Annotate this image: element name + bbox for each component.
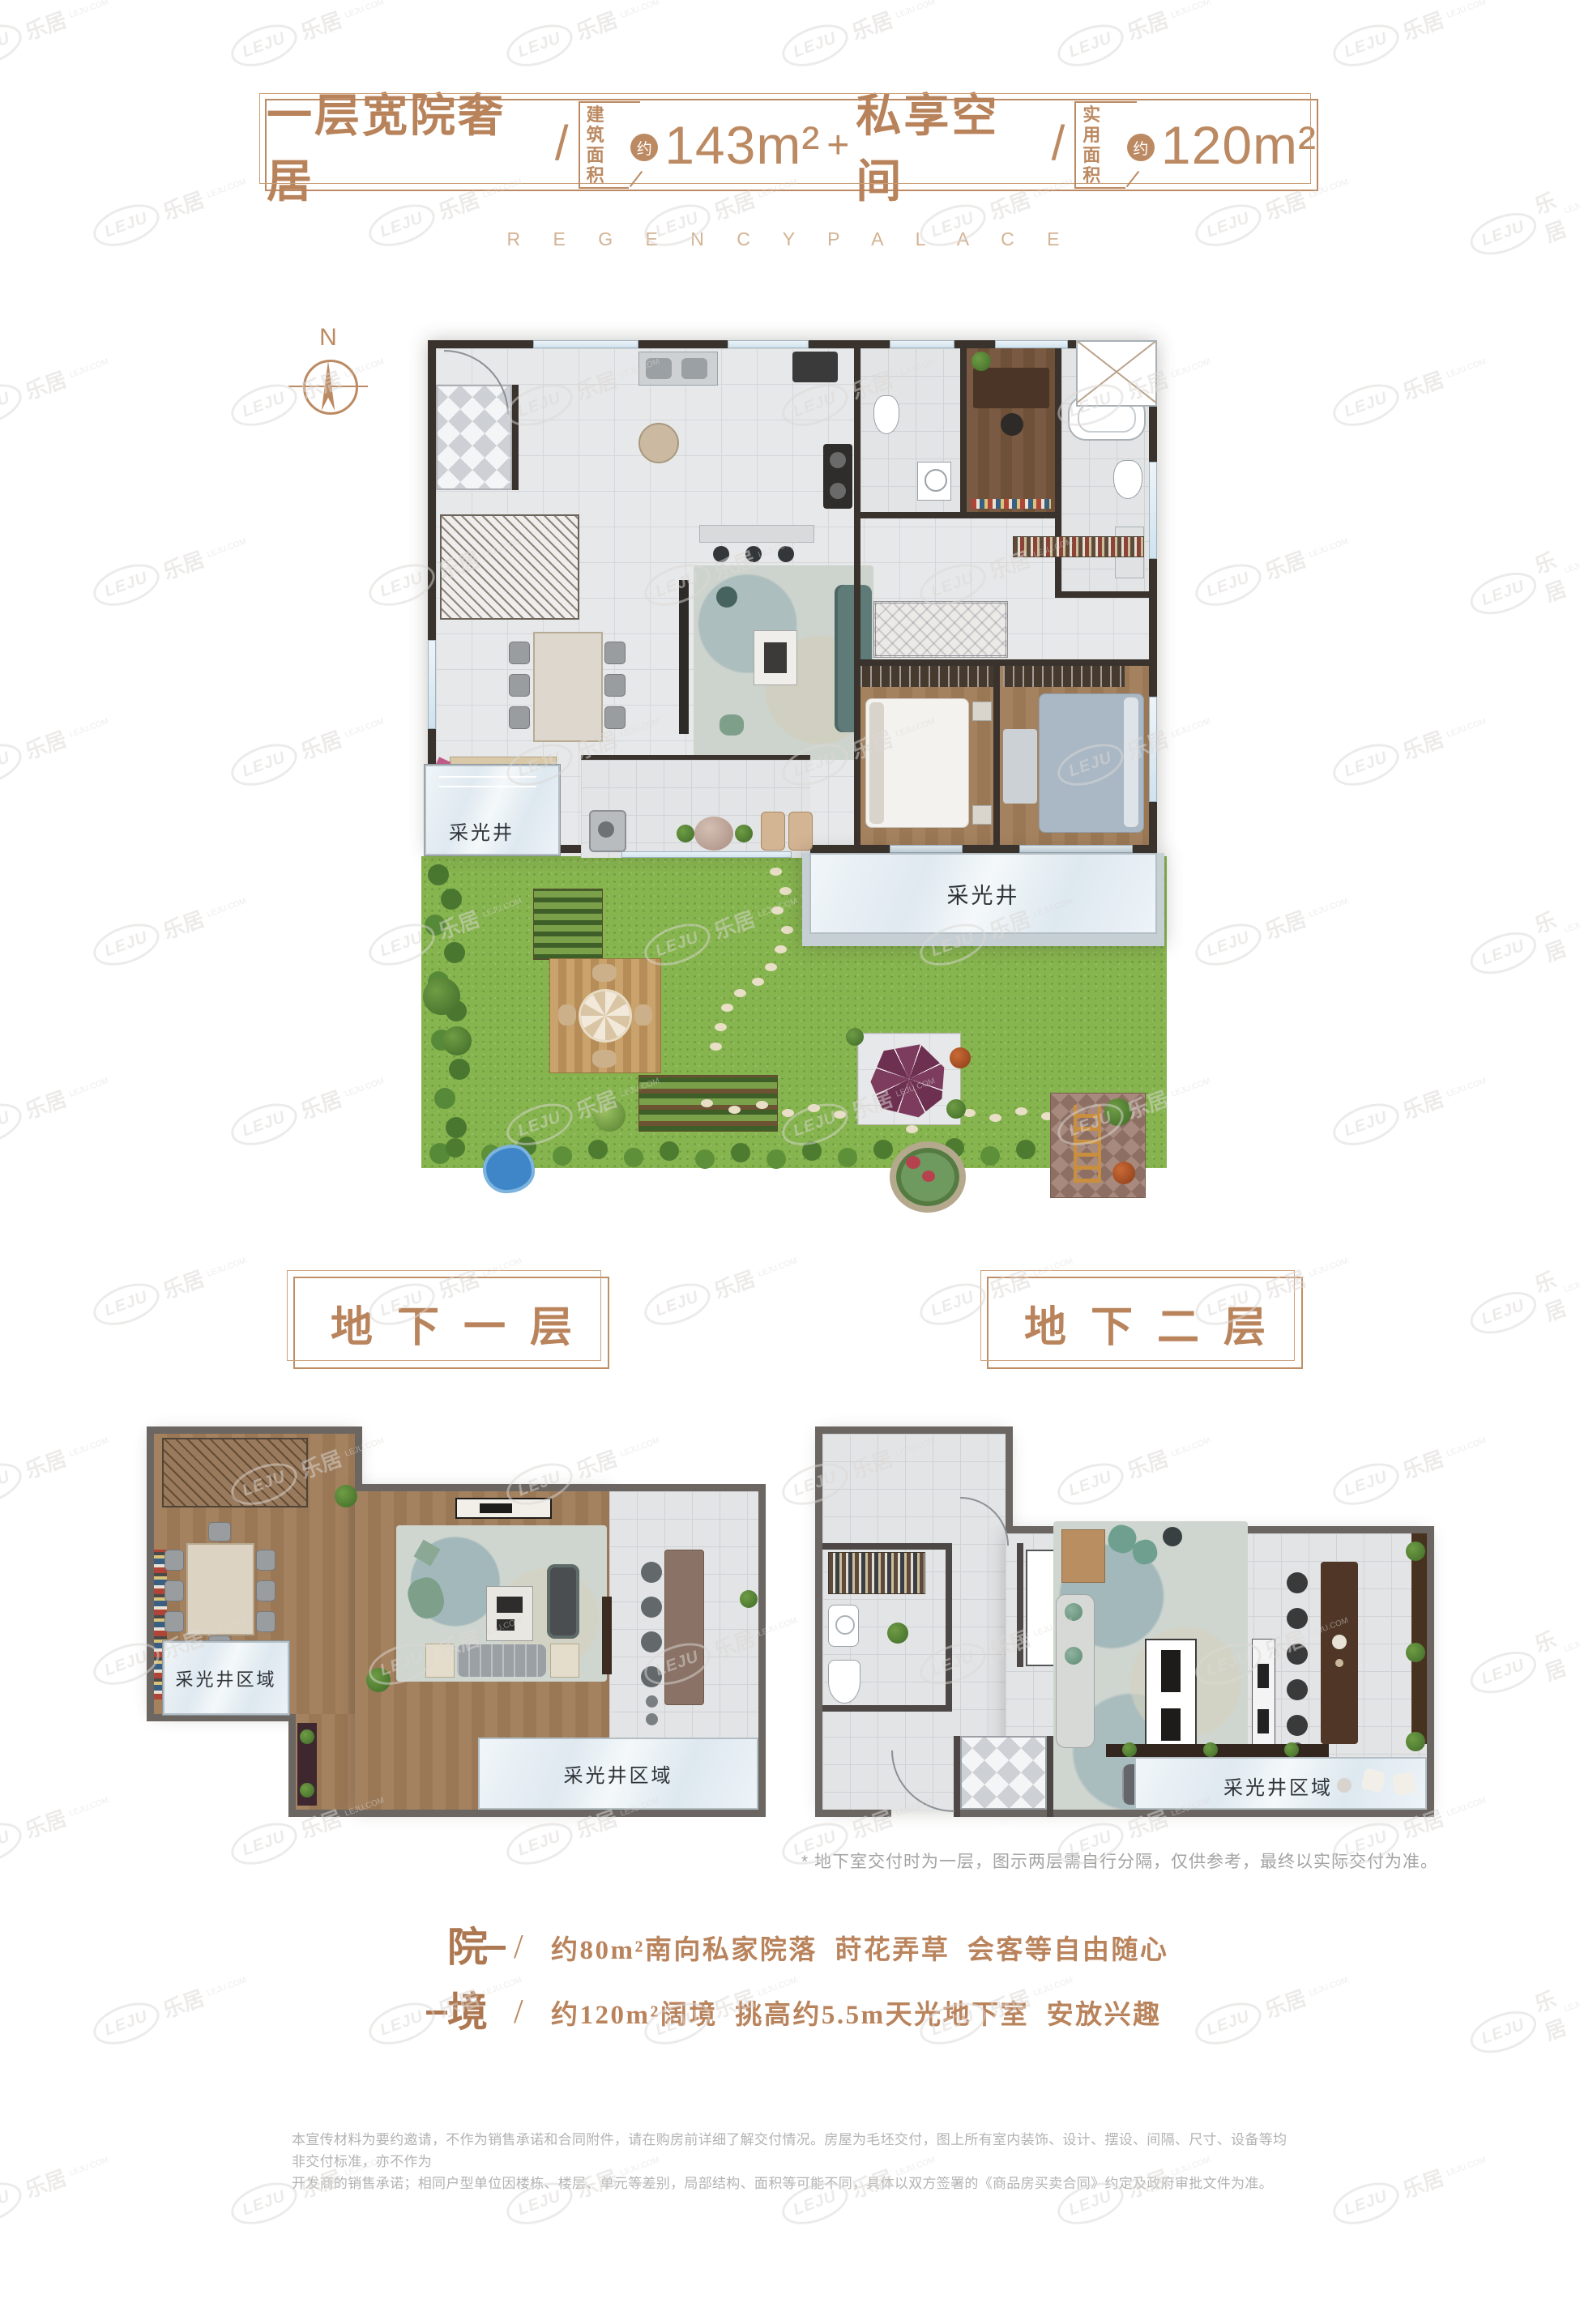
build-area-value: 143m² (664, 114, 820, 176)
yard-character: 院 (447, 1926, 488, 1968)
window (995, 340, 1068, 348)
toilet (1113, 460, 1142, 499)
leju-watermark-icon: LEJU乐居LEJU.COM (0, 0, 114, 75)
garden-deck (549, 958, 661, 1073)
chaise (547, 1564, 579, 1639)
wall (355, 1426, 362, 1491)
dining-chair (604, 642, 626, 664)
window (1149, 462, 1157, 559)
b2-lightwell-label: 采光井区域 (1223, 1772, 1333, 1800)
tub-inner (1078, 403, 1136, 433)
b1-island-counter (664, 1550, 704, 1705)
side-table (425, 1644, 455, 1678)
pillows (869, 702, 884, 824)
dining-chair (256, 1580, 275, 1601)
window (1149, 697, 1157, 802)
lightwell-left: 采光井 (424, 764, 561, 856)
nightstand (972, 805, 992, 825)
plant (1203, 1742, 1218, 1757)
compass: N (267, 324, 389, 446)
plant (1284, 1742, 1299, 1757)
b1-sofa (457, 1644, 546, 1677)
dining-chair (509, 706, 530, 729)
wall (355, 1484, 766, 1491)
leju-watermark-icon: LEJU乐居LEJU.COM (0, 344, 114, 434)
divider-slash: / (555, 115, 569, 171)
usable-area-label-1: 实用 (1083, 104, 1121, 145)
stool (641, 1597, 662, 1618)
b1-tv-console (455, 1498, 552, 1519)
shrub-row-left (428, 864, 449, 885)
sink-basin (681, 358, 707, 379)
bar-stool (713, 546, 729, 562)
leju-watermark-icon: LEJU乐居LEJU.COM (1461, 889, 1580, 993)
dining-chair (164, 1550, 184, 1571)
dining-table (533, 632, 603, 742)
entry-door-arc (444, 350, 509, 415)
tree (442, 1026, 472, 1055)
wall (946, 1543, 952, 1712)
tray (497, 1597, 523, 1613)
feature-row-yard: 院 / 约80m²南向私家院落 莳花弄草 会客等自由随心 (447, 1926, 1258, 1972)
disclaimer: 本宣传材料为要约邀请，不作为销售承诺和合同附件，请在购房前详细了解交付情况。房屋… (292, 2129, 1296, 2194)
washer-door (925, 469, 947, 492)
leju-watermark-icon: LEJU乐居LEJU.COM (501, 0, 665, 75)
kitchen-sink (638, 352, 718, 386)
wall (815, 1810, 891, 1817)
pouf (1163, 1527, 1182, 1546)
side-table (550, 1644, 579, 1678)
divider-slash: / (1052, 115, 1065, 171)
leju-watermark-icon: LEJU乐居LEJU.COM (1461, 169, 1580, 274)
wall (1055, 591, 1149, 598)
leju-watermark-icon: LEJU乐居LEJU.COM (0, 1064, 114, 1153)
leju-watermark-icon: LEJU乐居LEJU.COM (1461, 1248, 1580, 1353)
lightwell-frame (439, 776, 536, 787)
leju-watermark-icon: LEJU乐居LEJU.COM (88, 1243, 252, 1333)
dash-decoration (485, 1946, 506, 1950)
first-floor-plan: 采光井 采光井 (421, 340, 1167, 1168)
wall (147, 1426, 154, 1721)
wall (854, 348, 860, 845)
page-title: 一层宽院奢居 (267, 79, 545, 211)
ac-platform (1076, 340, 1157, 407)
tree (423, 978, 460, 1015)
usable-area-value: 120m² (1161, 114, 1317, 176)
wall (1055, 348, 1061, 598)
b2-entry-checker (960, 1736, 1047, 1810)
round-pond (890, 1141, 966, 1213)
yard-description: 约80m²南向私家院落 莳花弄草 会客等自由随心 (551, 1930, 1168, 1972)
kitchen-island (699, 525, 814, 543)
dining-chair (509, 642, 530, 664)
lightwell-right-label: 采光井 (947, 878, 1020, 910)
leju-watermark-icon: LEJU乐居LEJU.COM (1461, 529, 1580, 633)
leju-watermark-icon: LEJU乐居LEJU.COM (1327, 0, 1492, 75)
planter-strip (297, 1723, 317, 1806)
approx-badge: 约 (1127, 134, 1155, 161)
floorplan-poster: 一层宽院奢居 / 建筑 面积 约 143m² + 私享空间 / 实用 面积 约 … (0, 0, 1580, 2324)
plant (735, 825, 753, 842)
wall (512, 385, 519, 490)
play-area (1050, 1093, 1146, 1198)
sink-basin (646, 358, 672, 379)
approx-badge: 约 (630, 134, 658, 161)
shrub-row-bottom (446, 1138, 465, 1158)
b2-cabinet (1411, 1533, 1427, 1744)
leju-watermark-icon: LEJU乐居LEJU.COM (1461, 1608, 1580, 1712)
stool-small (646, 1713, 658, 1725)
realm-description: 约120m²阔境 挑高约5.5m天光地下室 安放兴趣 (551, 1994, 1162, 2036)
cushion (1392, 1772, 1416, 1795)
speaker-cone (598, 821, 614, 838)
pouf (716, 586, 737, 608)
chip-diagonal (1126, 171, 1139, 187)
shrub (1104, 1098, 1132, 1126)
burner (830, 483, 846, 499)
disclaimer-line-2: 开发商的销售承诺；相同户型单位因楼栋、楼层、单元等差别，局部结构、面积等可能不同… (292, 2173, 1296, 2194)
leju-watermark-icon: LEJU乐居LEJU.COM (1327, 704, 1492, 794)
feature-slash: / (514, 1926, 523, 1968)
basement1-title: 地下一层 (306, 1293, 596, 1354)
dining-chair (164, 1580, 184, 1601)
tv (480, 1503, 512, 1513)
build-area-chip: 建筑 面积 (579, 101, 630, 189)
shrub (1112, 1162, 1135, 1184)
wall (1017, 1543, 1023, 1667)
bedroom-2 (1000, 666, 1149, 845)
dining-chair (208, 1522, 231, 1542)
leju-watermark-icon: LEJU乐居LEJU.COM (0, 2143, 114, 2232)
header-box: 一层宽院奢居 / 建筑 面积 约 143m² + 私享空间 / 实用 面积 约 … (265, 99, 1318, 191)
garden-trellis (533, 889, 603, 960)
basement2-plan: 采光井区域 (810, 1388, 1450, 1829)
basement2-title: 地下二层 (1000, 1293, 1290, 1354)
dining-chair (604, 674, 626, 697)
b1-lightwell-bottom-label: 采光井区域 (564, 1759, 673, 1788)
terrace-window (621, 851, 792, 858)
plant (1122, 1742, 1137, 1757)
realm-character: 境 (447, 1991, 488, 2033)
cushion (1065, 1603, 1083, 1621)
void-hatch-area (440, 514, 579, 620)
stool (641, 1631, 662, 1652)
english-subtitle: R E G E N C Y P A L A C E (0, 228, 1580, 250)
stool (1287, 1679, 1308, 1700)
basement1-plan: 采光井区域 采光井区域 (142, 1388, 782, 1829)
leju-watermark-icon: LEJU乐居LEJU.COM (225, 0, 390, 75)
leju-watermark-icon: LEJU乐居LEJU.COM (776, 0, 941, 75)
leju-watermark-icon: LEJU乐居LEJU.COM (1327, 2143, 1492, 2232)
dining-chair (509, 674, 530, 697)
leju-watermark-icon: LEJU乐居LEJU.COM (1461, 1968, 1580, 2072)
study (967, 348, 1055, 512)
wall (1427, 1526, 1434, 1817)
leju-watermark-icon: LEJU乐居LEJU.COM (225, 1064, 390, 1153)
build-area-label-1: 建筑 (587, 104, 625, 145)
wall (147, 1426, 362, 1434)
dining-chair (256, 1550, 275, 1571)
b1-coffee-table (486, 1586, 533, 1641)
burner (830, 452, 846, 468)
plant (887, 1623, 908, 1644)
leju-watermark-icon: LEJU乐居LEJU.COM (1189, 524, 1354, 614)
compass-north-label: N (267, 324, 389, 352)
window (533, 340, 638, 348)
lounge-chair (761, 812, 785, 851)
wall (288, 1714, 296, 1817)
table-tray (764, 642, 787, 673)
leju-watermark-icon: LEJU乐居LEJU.COM (225, 704, 390, 794)
cup (1335, 1659, 1343, 1667)
bookshelf (971, 499, 1051, 509)
hallway-shelf (1013, 536, 1144, 557)
b2-lightwell: 采光井区域 (1134, 1757, 1427, 1810)
wall (822, 1705, 952, 1712)
bar-stool (778, 546, 794, 562)
wall (960, 348, 967, 512)
window (890, 845, 963, 853)
plus-sign: + (826, 123, 849, 168)
bathroom-1 (860, 348, 960, 512)
wall (954, 1736, 960, 1817)
plant (1406, 1732, 1425, 1751)
b1-hatch-area (162, 1438, 308, 1507)
flower-cluster (846, 1028, 864, 1046)
toilet (873, 395, 899, 434)
lightwell-right-glass: 采光井 (809, 853, 1157, 934)
tv-media-wall (679, 580, 689, 734)
deck-seat (634, 1004, 652, 1026)
leju-watermark-icon: LEJU乐居LEJU.COM (1189, 884, 1354, 974)
wall (960, 1810, 1434, 1817)
speaker (589, 810, 626, 852)
window (428, 640, 436, 729)
bar-stool (745, 546, 762, 562)
leju-watermark-icon: LEJU乐居LEJU.COM (0, 1423, 114, 1513)
tea-set (1332, 1635, 1347, 1649)
kitchen-table (638, 423, 679, 463)
terrace (581, 755, 810, 858)
b2-console (1252, 1639, 1275, 1758)
desk-chair (1001, 413, 1023, 436)
wall (815, 1426, 822, 1817)
plant (971, 352, 991, 371)
private-space-label: 私享空间 (856, 79, 1041, 211)
dining-chair (256, 1611, 275, 1632)
deck-seat (558, 1004, 576, 1026)
washer (917, 462, 951, 501)
leju-watermark-icon: LEJU乐居LEJU.COM (1052, 0, 1216, 75)
plant (366, 1668, 391, 1692)
stone-path (770, 868, 782, 876)
leju-watermark-icon: LEJU乐居LEJU.COM (88, 524, 252, 614)
stool-small (646, 1695, 658, 1708)
window (890, 340, 954, 348)
deck-table (581, 991, 630, 1040)
stool (641, 1666, 662, 1687)
plant (1406, 1542, 1425, 1561)
b2-bar-counter (1321, 1562, 1358, 1744)
leju-watermark-icon: LEJU乐居LEJU.COM (88, 884, 252, 974)
bed (865, 698, 969, 828)
stool (641, 1562, 662, 1583)
wall (993, 666, 1000, 845)
stool (1287, 1572, 1308, 1593)
window (728, 340, 809, 348)
wall (822, 1543, 952, 1550)
leju-watermark-icon: LEJU乐居LEJU.COM (638, 1243, 803, 1333)
flower-cluster (950, 1047, 971, 1068)
leju-watermark-icon: LEJU乐居LEJU.COM (88, 1963, 252, 2053)
stool (1287, 1644, 1308, 1665)
basement1-title-box: 地下一层 (293, 1277, 609, 1369)
nightstand (972, 701, 992, 721)
stone (1337, 1778, 1352, 1793)
disclaimer-line-1: 本宣传材料为要约邀请，不作为销售承诺和合同附件，请在购房前详细了解交付情况。房屋… (292, 2129, 1296, 2173)
dining-chair (164, 1611, 184, 1632)
leju-watermark-icon: LEJU乐居LEJU.COM (1327, 344, 1492, 434)
stone-path (906, 1125, 918, 1133)
toilet (828, 1660, 860, 1704)
washbasin (828, 1605, 859, 1647)
leju-watermark-icon: LEJU乐居LEJU.COM (0, 704, 114, 794)
stone-path (701, 1099, 713, 1107)
wall (815, 1426, 1013, 1434)
feature-row-realm: 境 / 约120m²阔境 挑高约5.5m天光地下室 安放兴趣 (447, 1991, 1258, 2036)
mirror-panel (1026, 1550, 1057, 1666)
plant (677, 825, 694, 842)
window (1019, 845, 1133, 853)
daybed (1056, 1594, 1095, 1748)
play-ladder (1074, 1105, 1101, 1183)
stool (1287, 1715, 1308, 1736)
wall (288, 1810, 766, 1817)
b2-wardrobe (828, 1552, 925, 1594)
usable-area-chip: 实用 面积 (1074, 101, 1125, 189)
b1-dining-table (186, 1543, 254, 1635)
planter-strip (1106, 1744, 1329, 1757)
small-pond (483, 1145, 535, 1193)
console-item (1258, 1664, 1269, 1688)
plant (740, 1590, 758, 1608)
flower-cluster (946, 1099, 966, 1119)
usable-area-label-2: 面积 (1083, 145, 1121, 185)
lily (922, 1171, 935, 1182)
basement2-title-box: 地下二层 (987, 1277, 1303, 1369)
wardrobe (1003, 666, 1125, 687)
stove (823, 444, 852, 509)
wall (860, 512, 1055, 518)
build-area-label-2: 面积 (587, 145, 625, 185)
b1-lightwell-bottom: 采光井区域 (478, 1738, 758, 1810)
tv (1161, 1650, 1181, 1692)
bed (1039, 693, 1144, 833)
leju-watermark-icon: LEJU乐居LEJU.COM (1327, 1064, 1492, 1153)
tree (593, 1099, 626, 1132)
lightwell-left-label: 采光井 (449, 817, 515, 845)
plant (300, 1729, 314, 1744)
wall (1006, 1426, 1013, 1533)
lightwell-right: 采光井 (802, 853, 1164, 946)
boulder (694, 817, 733, 851)
plant (300, 1783, 314, 1797)
wardrobe (860, 666, 993, 687)
wall (1047, 1736, 1053, 1817)
header-content: 一层宽院奢居 / 建筑 面积 约 143m² + 私享空间 / 实用 面积 约 … (267, 79, 1317, 211)
kitchen-appliance (792, 352, 838, 382)
chip-diagonal (630, 171, 643, 187)
wall (854, 659, 1149, 666)
bedroom-1 (860, 666, 993, 845)
b1-lightwell-left: 采光井区域 (162, 1640, 290, 1716)
b2-desk (1061, 1529, 1105, 1583)
console-item (1258, 1709, 1269, 1733)
floor-cushion (720, 714, 744, 736)
basement-note: * 地下室交付时为一层，图示两层需自行分隔，仅供参考，最终以实际交付为准。 (790, 1849, 1438, 1873)
pillows (1124, 697, 1138, 827)
deck-seat (592, 964, 617, 982)
cushion (1361, 1768, 1386, 1793)
tray (497, 1619, 515, 1631)
stool (1287, 1608, 1308, 1629)
lily (906, 1156, 920, 1169)
cabinet (1161, 1708, 1181, 1741)
leju-watermark-icon: LEJU乐居LEJU.COM (0, 1783, 114, 1873)
deck-seat (592, 1050, 617, 1068)
dash-decoration (426, 2011, 447, 2015)
dining-chair (604, 706, 626, 729)
foyer-rug (873, 601, 1008, 658)
partition (602, 1597, 612, 1674)
feature-slash: / (514, 1991, 523, 2033)
lounge-chair (788, 812, 813, 851)
bedroom-rug (1003, 729, 1037, 804)
desk (973, 368, 1049, 408)
plant (1406, 1643, 1425, 1662)
wall (758, 1484, 766, 1817)
cushion (1065, 1647, 1083, 1665)
b1-lightwell-left-label: 采光井区域 (175, 1665, 276, 1691)
plant (335, 1485, 357, 1507)
basin (835, 1615, 855, 1635)
coffee-table (754, 630, 797, 685)
